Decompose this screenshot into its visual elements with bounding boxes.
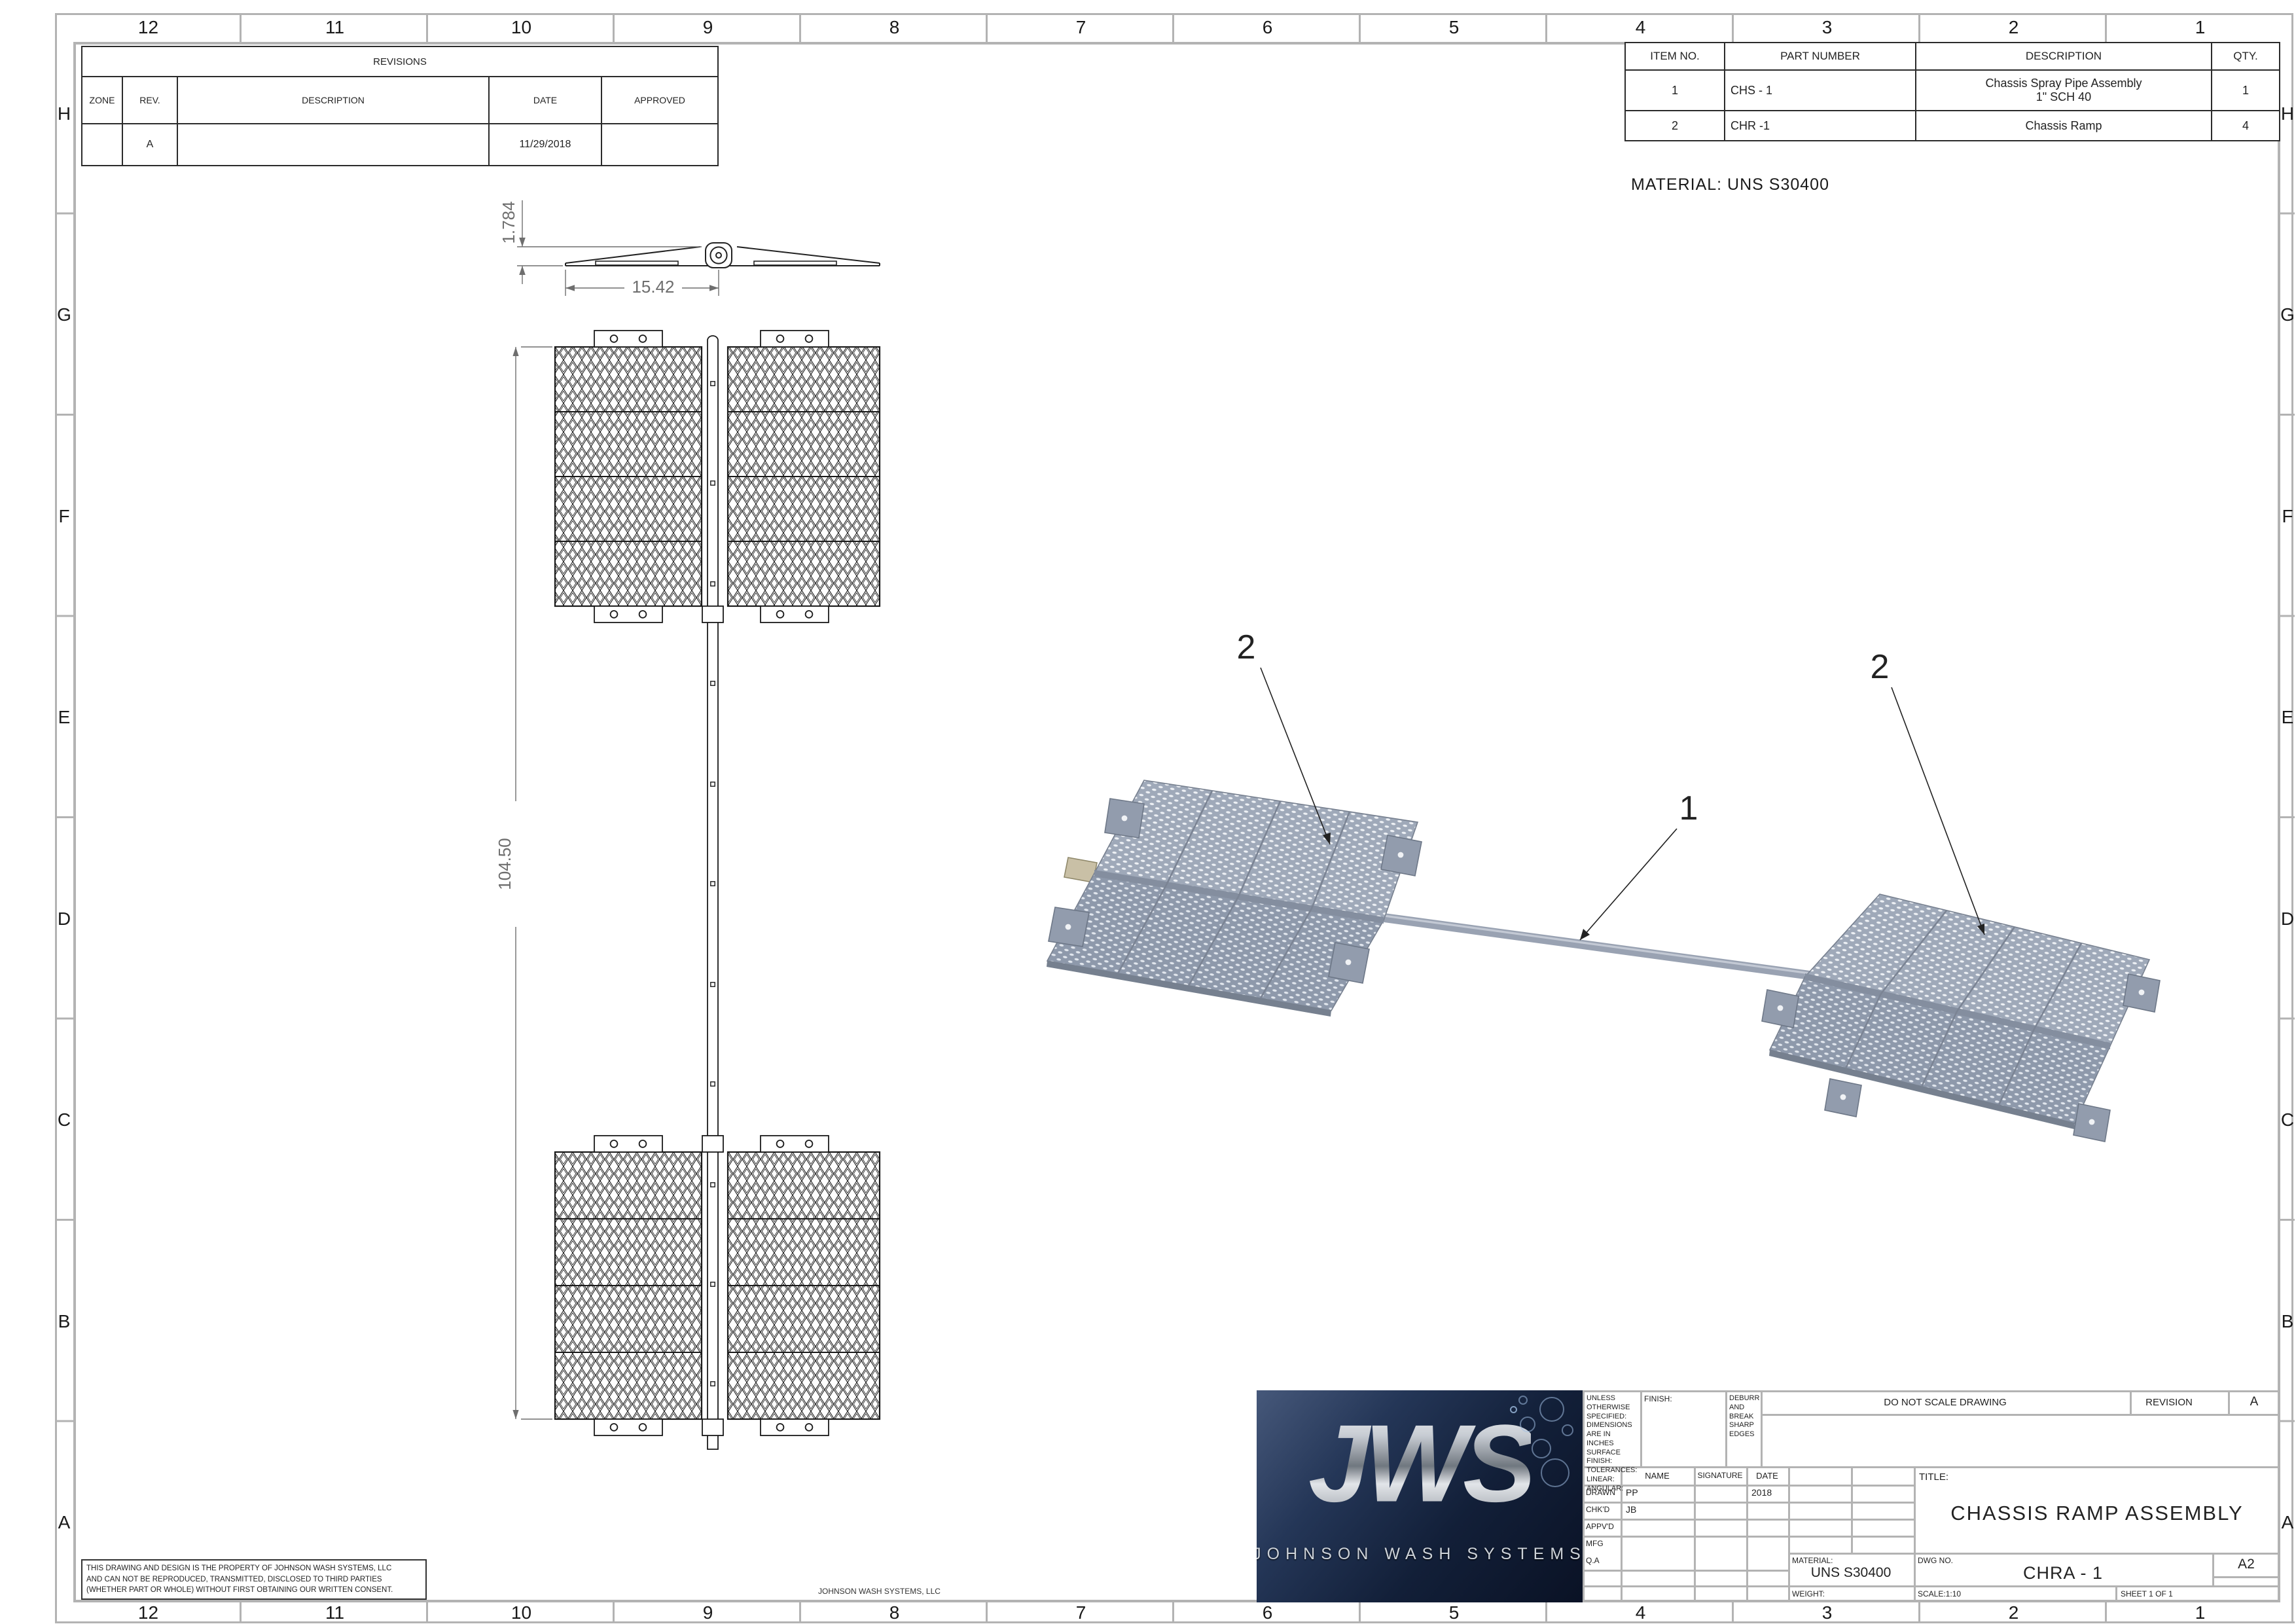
logo-company-name: JOHNSON WASH SYSTEMS (1257, 1545, 1583, 1564)
finish-label: FINISH: (1644, 1394, 1672, 1403)
do-not-scale-note: DO NOT SCALE DRAWING (1761, 1390, 2130, 1414)
isometric-view: 2 1 2 (1047, 628, 2160, 1142)
name-header: NAME (1621, 1466, 1694, 1485)
balloon-left: 2 (1237, 628, 1256, 666)
bubble-icon (1518, 1396, 1528, 1405)
date-header: DATE (1746, 1466, 1788, 1485)
chkd-name: JB (1626, 1504, 1636, 1515)
iso-ramp-left (1047, 780, 1422, 1017)
material-value: UNS S30400 (1788, 1562, 1914, 1584)
sheet-note: SHEET 1 OF 1 (2121, 1589, 2173, 1598)
bubble-icon (1520, 1416, 1535, 1432)
drawn-date: 2018 (1751, 1487, 1772, 1498)
drawing-sheet: 12 11 10 9 8 7 6 5 4 3 2 1 12 11 10 9 8 … (0, 0, 2296, 1624)
bubble-icon (1562, 1424, 1573, 1436)
proprietary-line: (WHETHER PART OR WHOLE) WITHOUT FIRST OB… (86, 1585, 422, 1596)
dim-ramp-half-width: 15.42 (632, 277, 674, 297)
logo-acronym: JWS (1308, 1401, 1531, 1527)
balloon-pipe: 1 (1679, 789, 1698, 827)
bubble-icon (1541, 1458, 1570, 1487)
chkd-label: CHK'D (1586, 1505, 1609, 1514)
appvd-label: APPV'D (1586, 1522, 1614, 1531)
scale-note: SCALE:1:10 (1918, 1589, 1961, 1598)
plan-view-dimension: 104.50 (495, 347, 552, 1419)
proprietary-line: AND CAN NOT BE REPRODUCED, TRANSMITTED, … (86, 1574, 422, 1585)
signature-header: SIGNATURE (1694, 1466, 1746, 1485)
company-logo: JWS JOHNSON WASH SYSTEMS (1257, 1390, 1583, 1602)
iso-pipe (1374, 916, 1820, 977)
dim-assembly-length: 104.50 (495, 838, 514, 890)
dwg-no-value: CHRA - 1 (1914, 1561, 2212, 1585)
iso-ramp-right (1762, 894, 2160, 1142)
revision-label: REVISION (2130, 1390, 2208, 1414)
drawn-label: DRAWN (1586, 1488, 1615, 1497)
proprietary-note: THIS DRAWING AND DESIGN IS THE PROPERTY … (81, 1559, 427, 1600)
plan-view: 104.50 (495, 331, 880, 1449)
drawing-title: CHASSIS RAMP ASSEMBLY (1914, 1481, 2280, 1546)
company-footer: JOHNSON WASH SYSTEMS, LLC (818, 1587, 941, 1596)
mfg-label: MFG (1586, 1539, 1604, 1548)
dim-ramp-height: 1.784 (499, 201, 518, 244)
drawing-views: 1.784 15.42 (0, 0, 2296, 1624)
bubble-icon (1532, 1439, 1551, 1458)
weight-label: WEIGHT: (1792, 1589, 1825, 1598)
qa-label: Q.A (1586, 1556, 1600, 1565)
bubble-icon (1510, 1406, 1517, 1413)
deburr-note: DEBURR AND BREAK SHARP EDGES (1729, 1394, 1759, 1439)
proprietary-line: THIS DRAWING AND DESIGN IS THE PROPERTY … (86, 1563, 422, 1574)
bubble-icon (1539, 1397, 1564, 1422)
drawn-name: PP (1626, 1487, 1638, 1498)
revision-value: A (2228, 1390, 2280, 1414)
sheet-size: A2 (2212, 1553, 2280, 1576)
balloon-right: 2 (1871, 648, 1890, 686)
